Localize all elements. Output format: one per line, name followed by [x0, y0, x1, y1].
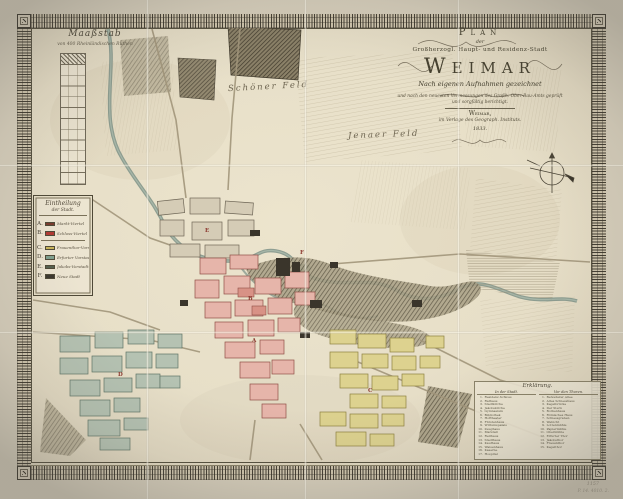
border-corner-ornament — [592, 466, 606, 480]
index-column-outside-heading: Vor den Thoren. — [539, 390, 598, 395]
index-entry-name: Stadthaus — [485, 439, 501, 442]
legend-subheading: der Stadt. — [39, 208, 87, 216]
index-entry-name: Jakobskirche — [485, 407, 505, 410]
quarter-letter: C — [368, 388, 372, 394]
legend-entry: C.Frauenthor-Vorstadt — [37, 243, 89, 253]
border-band-bottom — [17, 466, 606, 480]
cartouche-note-2: und nach den neuesten Vermessungen des G… — [385, 94, 575, 99]
legend-entry-label: Erfurter Vorstadt — [57, 255, 89, 260]
index-column-outside: Vor den Thoren. 1.Belvederer Allee2.Alte… — [539, 390, 598, 456]
index-entry-name: Schiessgraben — [547, 417, 570, 420]
legend-entry: A.Markt-Viertel — [37, 219, 89, 229]
map-photo: Maaßstab von 400 Rheinländischen Ruthen … — [0, 0, 623, 499]
cartouche-place: Weimar, — [445, 108, 515, 117]
legend-entry-letter: D. — [37, 254, 43, 260]
legend-entry-letter: E. — [37, 264, 43, 270]
index-entry-name: Hospital — [485, 453, 498, 456]
legend-entry-letter: B. — [37, 230, 43, 236]
legend-entry-letter: F. — [37, 273, 43, 279]
index-entry-name: Jakobsthor — [547, 439, 564, 442]
legend-color-swatch — [45, 246, 55, 251]
index-entry-name: Rathaus — [485, 400, 498, 403]
map-title: Weimar — [385, 54, 575, 78]
index-rows: 1.Belvederer Allee2.Altes Schiesshaus3.K… — [539, 396, 598, 449]
legend-entry-label: Jakobs-Vorstadt — [57, 264, 89, 269]
index-entry-name: Wittumspalais — [485, 424, 507, 427]
border-corner-ornament — [592, 14, 606, 28]
index-entry-name: Hoftheater — [485, 417, 502, 420]
quarter-letter: A — [252, 338, 256, 344]
index-entry-number: 17. — [477, 453, 483, 457]
street-index: Erklärung. In der Stadt. 1.Residenz-Schl… — [474, 381, 601, 460]
index-entry-name: Webicht — [547, 421, 560, 424]
index-column-city: In der Stadt. 1.Residenz-Schloss2.Rathau… — [477, 390, 536, 456]
index-entry-name: Kegelbrücke — [547, 403, 567, 406]
legend-entry-letter: A. — [37, 221, 43, 227]
cartouche-plan-word: Plan — [385, 27, 575, 38]
index-heading: Erklärung. — [477, 383, 598, 389]
border-corner-ornament — [17, 466, 31, 480]
quarter-letter: B — [248, 296, 253, 302]
legend-color-swatch — [45, 222, 55, 227]
index-entry-name: Zeughaus — [485, 428, 500, 431]
index-entry-name: Kaserne — [485, 449, 498, 452]
border-band-top — [17, 14, 606, 28]
index-entry-name: Gymnasium — [485, 410, 504, 413]
cartouche-der: der — [385, 39, 575, 45]
border-corner-ornament — [17, 14, 31, 28]
index-entry-name: Kegelthor — [547, 446, 562, 449]
legend-entry: E.Jakobs-Vorstadt — [37, 262, 89, 272]
legend-color-swatch — [45, 231, 55, 236]
legend-entry: B.Schloss-Viertel — [37, 229, 89, 239]
index-entry-name: Bibliothek — [485, 414, 501, 417]
index-entry-name: Residenz-Schloss — [485, 396, 512, 399]
border-band-left — [17, 14, 31, 480]
index-entry-name: Lottenmühle — [547, 424, 567, 427]
scale-bar-ladder — [60, 53, 86, 185]
legend-city-quarters: Eintheilung der Stadt. A.Markt-ViertelB.… — [33, 195, 93, 296]
index-entry-name: Römisches Haus — [547, 414, 573, 417]
quarter-letter: D — [118, 372, 123, 378]
index-column-city-heading: In der Stadt. — [477, 390, 536, 395]
index-entry-name: Obermühle — [547, 431, 565, 434]
cartouche-publisher: im Verlage des Geograph. Instituts. — [385, 118, 575, 123]
margin-note: P. 14. 4010. 2. — [529, 489, 609, 494]
title-cartouche: Plan der Großherzogl. Haupt- und Residen… — [385, 27, 575, 132]
legend-entry-label: Schloss-Viertel — [57, 231, 87, 236]
index-entry-name: Belvederer Allee — [547, 396, 573, 399]
index-entry-name: Altes Schiesshaus — [547, 400, 575, 403]
scale-bar-subtitle: von 400 Rheinländischen Ruthen — [30, 42, 160, 47]
legend-color-swatch — [45, 255, 55, 260]
index-rows: 1.Residenz-Schloss2.Rathaus3.Stadtkirche… — [477, 396, 536, 456]
quarter-letter: E — [205, 228, 209, 234]
index-entry-name: Frauenthor — [547, 442, 565, 445]
legend-entries: A.Markt-ViertelB.Schloss-ViertelC.Frauen… — [37, 219, 89, 281]
index-entry-number: 15. — [539, 446, 545, 450]
index-entry-name: Waisenhaus — [485, 446, 504, 449]
legend-entry-letter: C. — [37, 245, 43, 251]
cartouche-note-1: Nach eigenen Aufnahmen gezeichnet — [385, 80, 575, 88]
legend-entry: F.Neue Stadt — [37, 272, 89, 282]
scale-bar-ladder-hatched-cell — [60, 53, 86, 64]
legend-entry-label: Markt-Viertel — [57, 221, 84, 226]
legend-heading: Eintheilung — [37, 200, 89, 207]
cartouche-note-3: und sorgfältig berichtigt. — [385, 100, 575, 105]
index-entry: 17.Hospital — [477, 453, 536, 457]
quarter-letter: F — [300, 250, 304, 256]
legend-color-swatch — [45, 274, 55, 279]
index-entry-name: Marstall — [485, 431, 498, 434]
index-entry-name: Reithaus — [485, 435, 499, 438]
legend-color-swatch — [45, 265, 55, 270]
legend-entry-label: Neue Stadt — [57, 274, 80, 279]
index-entry-name: Borkenhaus — [547, 410, 566, 413]
index-entry-name: Fürstenhaus — [485, 421, 505, 424]
index-entry-name: Papiermühle — [547, 428, 567, 431]
scale-bar-title: Maaßstab — [40, 29, 150, 39]
margin-note: 1157 — [539, 482, 599, 487]
index-entry-name: Kaufhaus — [485, 442, 500, 445]
legend-entry-label: Frauenthor-Vorstadt — [57, 245, 89, 250]
legend-entry: D.Erfurter Vorstadt — [37, 253, 89, 263]
index-entry: 15.Kegelthor — [539, 446, 598, 450]
index-entry-name: Stadtkirche — [485, 403, 503, 406]
index-entry-name: Der Stern — [547, 407, 562, 410]
index-entry-name: Erfurter Thor — [547, 435, 568, 438]
legend-divider — [41, 240, 85, 241]
cartouche-subtitle: Großherzogl. Haupt- und Residenz-Stadt — [385, 47, 575, 53]
